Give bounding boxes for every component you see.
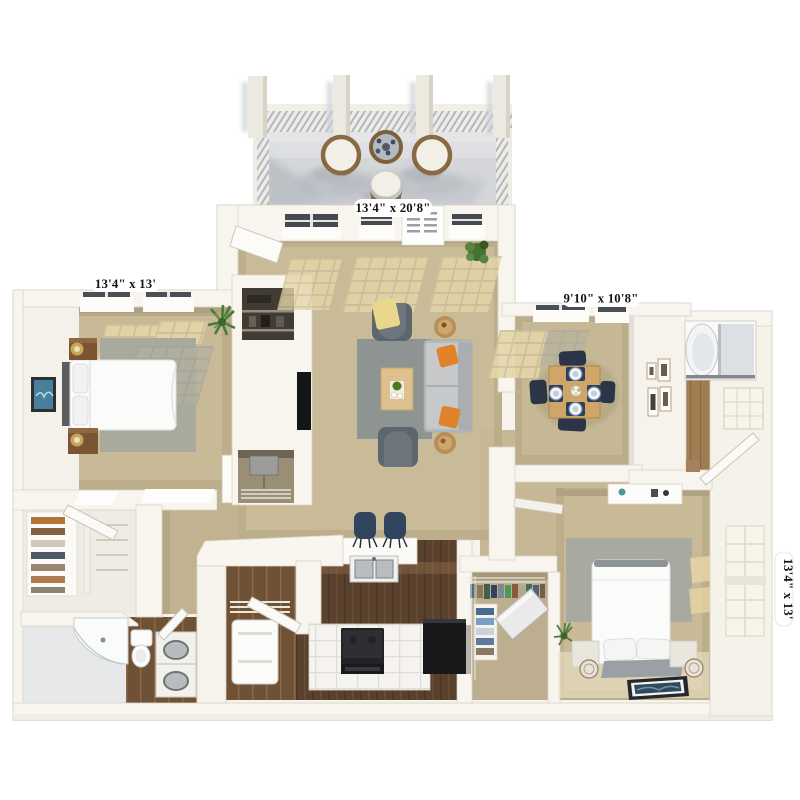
svg-text:13'4" x 13': 13'4" x 13' xyxy=(781,558,795,619)
svg-text:13'4" x 13': 13'4" x 13' xyxy=(95,277,156,291)
svg-text:13'4" x 20'8": 13'4" x 20'8" xyxy=(355,201,430,215)
svg-text:9'10" x 10'8": 9'10" x 10'8" xyxy=(563,292,638,306)
